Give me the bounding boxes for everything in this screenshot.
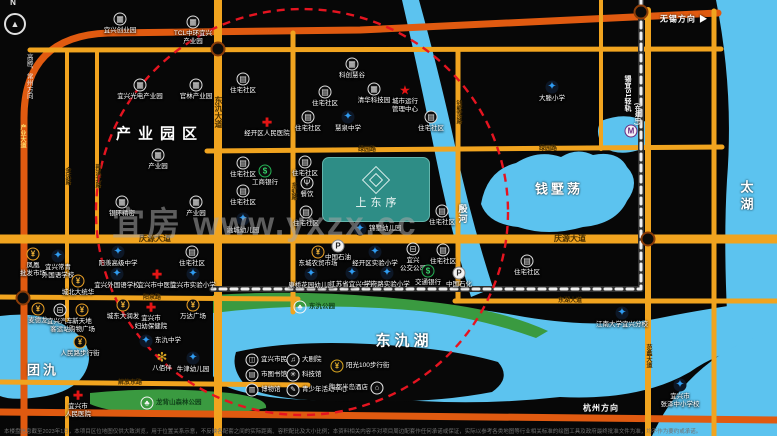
government-icon: ★ [399, 84, 412, 97]
hospital-poi-label: 宜兴市 人民医院 [65, 403, 91, 420]
culture-poi-label: 陶都半岛酒店 [329, 384, 368, 392]
shopping-icon: ¥ [27, 248, 40, 261]
department-store-icon: ✻ [156, 351, 169, 364]
culture-poi-label: 大剧院 [302, 356, 322, 364]
residence-icon: ▤ [437, 244, 450, 257]
shopping-icon: ¥ [74, 336, 87, 349]
road-name-label: 金达路 [64, 167, 70, 185]
school-icon: ✦ [674, 379, 687, 392]
department-store-poi-label: 八佰伴 [152, 365, 172, 373]
park-poi-label: 龙背山森林公园 [156, 399, 202, 407]
metro-station-icon: M [625, 125, 638, 138]
park-poi-label: 东氿公园 [309, 303, 335, 311]
area-label: 锡宜S1轻轨 [622, 75, 632, 112]
road-name-label: 范蠡大道 [645, 344, 651, 368]
school-poi-label: 宜兴常青 外国语学校 [42, 264, 75, 281]
residence-poi-label: 住宅社区 [430, 258, 456, 266]
road-name-label: 解放东路 [118, 380, 142, 386]
residence-poi-label: 住宅社区 [312, 100, 338, 108]
school-poi-label: 宜兴市实验小学 [170, 282, 216, 290]
industry-park-poi-label: 宜兴光电产业园 [117, 93, 163, 101]
park-icon: ♣ [294, 301, 307, 314]
shopping-icon: ¥ [312, 246, 325, 259]
industry-park-poi-label: 产业园 [148, 163, 168, 171]
industry-park-poi-label: TCL中环宜兴 产业园 [174, 30, 212, 47]
hospital-poi-label: 经开区人民医院 [244, 130, 290, 138]
school-icon: ✦ [111, 268, 124, 281]
area-label: 钱墅荡 [535, 179, 583, 198]
hospital-poi-label: 宜兴市 妇幼保健院 [135, 315, 168, 332]
school-poi-label: 慧泉中学 [335, 125, 361, 133]
residence-poi-label: 住宅社区 [429, 219, 455, 227]
school-poi-label: 康桥花园幼儿园 [288, 282, 334, 290]
culture-icon: ◫ [246, 354, 259, 367]
residence-icon: ▤ [237, 185, 250, 198]
school-icon: ✦ [546, 81, 559, 94]
restaurant-icon: Ψ [301, 177, 314, 190]
culture-icon: ♫ [287, 354, 300, 367]
residence-poi-label: 住宅社区 [514, 269, 540, 277]
culture-icon: ⌂ [371, 382, 384, 395]
school-poi-label: 牛津幼儿园 [177, 366, 210, 374]
school-poi-label: 大塍小学 [539, 95, 565, 103]
school-icon: ✦ [305, 268, 318, 281]
school-icon: ✦ [187, 268, 200, 281]
residence-icon: ▤ [436, 205, 449, 218]
culture-poi-label: 市图书馆 [261, 371, 287, 379]
residence-poi-label: 住宅社区 [179, 260, 205, 268]
school-poi-label: 江南大学宜兴分校 [596, 321, 648, 329]
shopping-icon: ¥ [187, 299, 200, 312]
school-poi-label: 学府路实验小学 [364, 281, 410, 289]
school-icon: ✦ [369, 246, 382, 259]
industry-park-icon: ▦ [114, 13, 127, 26]
industry-park-poi-label: 官林产业园 [180, 93, 213, 101]
residence-icon: ▤ [237, 157, 250, 170]
area-label: 产业园区 [116, 123, 204, 144]
shopping-poi-label: 人民路步行街 [61, 350, 100, 358]
culture-icon: ✳ [287, 369, 300, 382]
school-icon: ✦ [52, 250, 65, 263]
school-icon: ✦ [616, 307, 629, 320]
residence-poi-label: 住宅社区 [230, 87, 256, 95]
hospital-icon: ✚ [151, 268, 164, 281]
shopping-poi-label: 万达广场 [180, 313, 206, 321]
government-poi-label: 城市运行 管理中心 [392, 98, 418, 115]
industry-park-icon: ▦ [152, 149, 165, 162]
school-poi-label: 东氿中学 [155, 337, 181, 345]
park-icon: ♣ [141, 397, 154, 410]
road-name-label: 产业大道 [19, 124, 25, 148]
compass-icon: ▲ [4, 13, 26, 35]
shopping-street-icon: ¥ [331, 360, 344, 373]
school-icon: ✦ [381, 267, 394, 280]
watermark: 宜房 www.yxzx.cc [112, 197, 418, 245]
road-name-label: 东湖大道 [558, 298, 582, 304]
shopping-street-poi-label: 阳光100步行街 [346, 362, 389, 370]
area-label: 东氿湖 [375, 330, 432, 351]
road-yellow [207, 147, 722, 151]
school-icon: ✦ [187, 352, 200, 365]
area-label: 太湖 [737, 180, 756, 214]
culture-poi-label: 科技馆 [302, 371, 322, 379]
hospital-icon: ✚ [145, 301, 158, 314]
gas-station-poi-label: 中国石化 [446, 281, 472, 289]
residence-icon: ▤ [425, 111, 438, 124]
residence-icon: ▤ [302, 111, 315, 124]
school-icon: ✦ [140, 335, 153, 348]
road-yellow [0, 382, 308, 385]
culture-poi-label: 博物馆 [261, 386, 281, 394]
road-name-label: 绿园路 [358, 147, 376, 153]
road-name-label: 高塍、常州方向 [25, 53, 32, 99]
school-icon: ✦ [342, 111, 355, 124]
industry-park-icon: ▦ [190, 79, 203, 92]
shopping-icon: ¥ [117, 299, 130, 312]
culture-icon: ▤ [246, 369, 259, 382]
compass-north-label: N [10, 0, 16, 7]
road-junction-icon [212, 43, 225, 56]
bus-station-icon: ⊟ [54, 304, 67, 317]
shopping-icon: ¥ [32, 303, 45, 316]
shopping-icon: ¥ [76, 304, 89, 317]
industry-park-poi-label: 科创慧谷 [339, 72, 365, 80]
road-name-label: 庆源大道 [554, 235, 586, 243]
school-poi-label: 宜兴市 张泽中小学校 [661, 393, 700, 410]
shopping-poi-label: 麦德龙 [28, 317, 48, 325]
residence-icon: ▤ [521, 255, 534, 268]
bank-icon: $ [422, 265, 435, 278]
school-poi-label: 宜兴外国语学校 [94, 282, 140, 290]
road-junction-icon [642, 233, 655, 246]
gas-station-poi-label: 中国石油 [325, 254, 351, 262]
industry-park-icon: ▦ [134, 79, 147, 92]
road-junction-icon [17, 292, 30, 305]
road-junction-icon [635, 6, 648, 19]
residence-icon: ▤ [186, 246, 199, 259]
shopping-poi-label: 新天地 购物广场 [69, 318, 95, 335]
residence-icon: ▤ [237, 73, 250, 86]
gas-station-icon: P [453, 267, 466, 280]
industry-park-poi-label: 清华科技园 [358, 97, 391, 105]
road-name-label: 绿园路 [539, 146, 557, 152]
road-yellow [30, 49, 721, 50]
road-orange [0, 412, 777, 420]
hospital-icon: ✚ [261, 116, 274, 129]
school-icon: ✦ [346, 267, 359, 280]
industry-park-icon: ▦ [187, 16, 200, 29]
culture-icon: ▥ [246, 384, 259, 397]
project-logo-icon [362, 165, 390, 193]
residence-poi-label: 住宅社区 [418, 125, 444, 133]
residence-poi-label: 住宅社区 [295, 125, 321, 133]
disclaimer-text: 本楼盘信息截至2023年1月，本项目区位地图仅供大致浏览，用于位置关系示意，不反… [4, 427, 774, 435]
road-name-label: 钱墅荡路 [455, 100, 461, 124]
school-icon: ✦ [112, 246, 125, 259]
residence-icon: ▤ [299, 156, 312, 169]
bank-icon: $ [259, 165, 272, 178]
area-label: 杭州方向 [583, 403, 619, 414]
industry-park-icon: ▦ [346, 58, 359, 71]
industry-park-icon: ▦ [368, 83, 381, 96]
industry-park-poi-label: 宜兴创业园 [104, 27, 137, 35]
area-label: 无锡方向 ▶ [660, 14, 708, 25]
road-name-label: 东氿大道 [214, 96, 222, 128]
road-name-label: 荆溪北路 [94, 164, 100, 188]
shopping-poi-label: 城北大统华 [62, 289, 95, 297]
area-label: (在建中) [633, 103, 642, 125]
culture-icon: ✎ [287, 384, 300, 397]
shopping-icon: ¥ [72, 275, 85, 288]
bank-poi-label: 工商银行 [252, 179, 278, 187]
map-canvas: N ▲ 上东序 产业园区团氿东氿湖钱墅荡太湖殷河无锡方向 ▶杭州方向锡宜S1轻轨… [0, 0, 777, 436]
hospital-icon: ✚ [72, 389, 85, 402]
residence-icon: ▤ [319, 86, 332, 99]
area-label: 殷河 [457, 204, 470, 224]
bank-poi-label: 交通银行 [415, 279, 441, 287]
area-label: 团氿 [27, 360, 59, 379]
